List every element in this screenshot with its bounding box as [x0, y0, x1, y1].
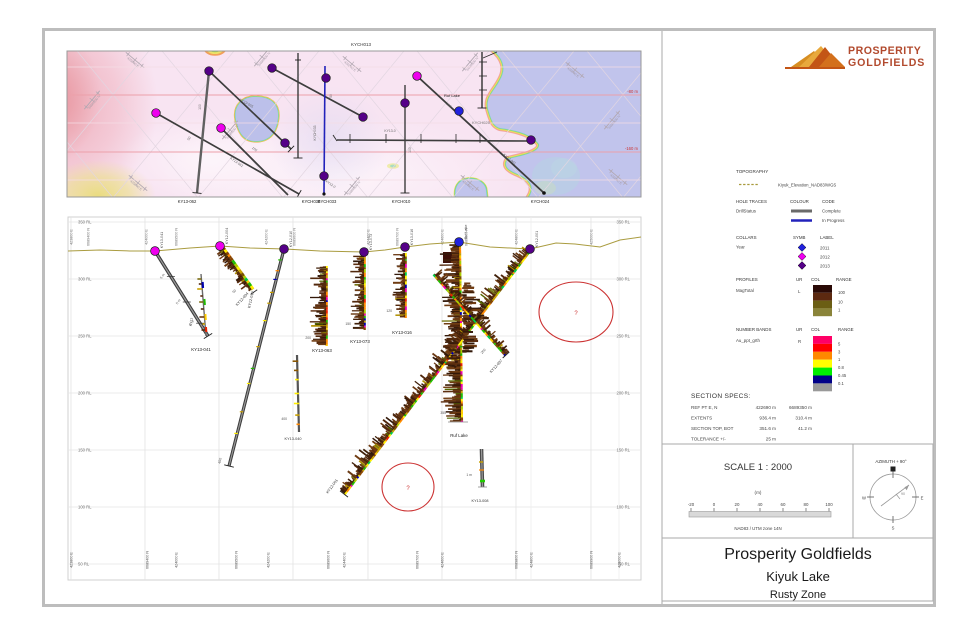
- svg-text:SCALE 1 : 2000: SCALE 1 : 2000: [724, 462, 792, 473]
- svg-text:50: 50: [329, 94, 333, 98]
- svg-text:2013: 2013: [820, 263, 830, 268]
- svg-text:-80 m: -80 m: [627, 89, 638, 94]
- svg-text:KY13-041: KY13-041: [191, 347, 211, 352]
- svg-text:KY13-040: KY13-040: [285, 437, 302, 441]
- svg-text:Kiyuk_Elevation_NAD83/WGS: Kiyuk_Elevation_NAD83/WGS: [778, 183, 836, 188]
- svg-text:-20: -20: [688, 502, 695, 507]
- svg-text:350 RL: 350 RL: [616, 220, 630, 225]
- svg-text:424600 E: 424600 E: [441, 552, 445, 568]
- svg-text:KY13-016: KY13-016: [392, 330, 412, 335]
- svg-text:E: E: [921, 496, 924, 501]
- svg-text:Prosperity Goldfields: Prosperity Goldfields: [724, 546, 872, 563]
- svg-text:MagTotal: MagTotal: [736, 288, 754, 293]
- svg-text:KYCH010: KYCH010: [392, 199, 411, 204]
- svg-text:250 RL: 250 RL: [78, 334, 92, 339]
- svg-text:80: 80: [804, 502, 809, 507]
- svg-text:HOLE TRACES: HOLE TRACES: [736, 199, 767, 204]
- svg-text:424400 E: 424400 E: [343, 552, 347, 568]
- svg-text:Ruf Lake: Ruf Lake: [464, 225, 468, 240]
- svg-text:AZIMUTH + 90°: AZIMUTH + 90°: [875, 459, 906, 464]
- svg-text:150 RL: 150 RL: [78, 448, 92, 453]
- svg-text:EXTENTS: EXTENTS: [691, 416, 712, 421]
- svg-text:COL: COL: [811, 277, 821, 282]
- svg-text:10: 10: [838, 300, 843, 305]
- svg-text:90: 90: [901, 492, 905, 496]
- svg-text:936.4 m: 936.4 m: [759, 416, 776, 421]
- svg-text:50 RL: 50 RL: [78, 562, 90, 567]
- svg-text:SECTION SPECS:: SECTION SPECS:: [691, 393, 751, 400]
- svg-text:COL: COL: [811, 327, 821, 332]
- svg-text:PROFILES: PROFILES: [736, 277, 758, 282]
- svg-text:KY13-062: KY13-062: [178, 199, 197, 204]
- svg-text:424200 E: 424200 E: [265, 229, 269, 245]
- svg-text:41.2 m: 41.2 m: [798, 426, 812, 431]
- svg-text:351.6 m: 351.6 m: [759, 426, 776, 431]
- svg-text:KY13-063: KY13-063: [312, 348, 332, 353]
- svg-text:KYCH033: KYCH033: [313, 125, 317, 140]
- svg-text:424200 E: 424200 E: [267, 552, 271, 568]
- svg-text:KY13-016: KY13-016: [410, 229, 414, 245]
- svg-text:60: 60: [781, 502, 786, 507]
- svg-text:SYMB: SYMB: [793, 235, 806, 240]
- svg-text:350 RL: 350 RL: [78, 220, 92, 225]
- svg-text:6689900 N: 6689900 N: [590, 551, 594, 569]
- svg-text:UR: UR: [796, 277, 802, 282]
- svg-text:423800 E: 423800 E: [70, 229, 74, 245]
- svg-text:120: 120: [386, 309, 392, 313]
- svg-text:300 RL: 300 RL: [616, 277, 630, 282]
- svg-text:300 RL: 300 RL: [78, 277, 92, 282]
- svg-text:20: 20: [735, 502, 740, 507]
- svg-text:424800 E: 424800 E: [530, 552, 534, 568]
- svg-text:KYCH013: KYCH013: [351, 42, 372, 47]
- svg-text:DrillStatus: DrillStatus: [736, 209, 757, 214]
- svg-text:0.45: 0.45: [838, 373, 847, 378]
- svg-text:0.8: 0.8: [838, 365, 844, 370]
- svg-text:100 RL: 100 RL: [616, 505, 630, 510]
- svg-text:RANGE: RANGE: [838, 327, 854, 332]
- svg-text:250 RL: 250 RL: [616, 334, 630, 339]
- svg-text:GOLDFIELDS: GOLDFIELDS: [848, 57, 925, 69]
- svg-text:6689600 N: 6689600 N: [327, 551, 331, 569]
- svg-text:355: 355: [440, 411, 446, 415]
- svg-text:NAD83 / UTM zone 14N: NAD83 / UTM zone 14N: [734, 526, 781, 531]
- svg-text:Complete: Complete: [822, 209, 841, 214]
- svg-text:100: 100: [838, 290, 846, 295]
- svg-text:Kiyuk Lake: Kiyuk Lake: [766, 569, 830, 584]
- svg-text:100 RL: 100 RL: [78, 505, 92, 510]
- svg-text:-160 m: -160 m: [625, 146, 639, 151]
- svg-text:KYCH025: KYCH025: [472, 120, 491, 125]
- svg-text:2011: 2011: [820, 245, 830, 250]
- svg-text:KY12-001: KY12-001: [535, 231, 539, 247]
- svg-text:1 m: 1 m: [466, 473, 472, 477]
- svg-text:Ruf Lake: Ruf Lake: [444, 93, 461, 98]
- svg-text:KY13-073: KY13-073: [350, 339, 370, 344]
- svg-text:6689400 N: 6689400 N: [87, 228, 91, 246]
- svg-text:150: 150: [345, 322, 351, 326]
- svg-text:6689350 m: 6689350 m: [789, 405, 812, 410]
- svg-text:LABEL: LABEL: [820, 235, 834, 240]
- svg-text:CODE: CODE: [822, 199, 835, 204]
- svg-text:Ruf Lake: Ruf Lake: [450, 433, 468, 438]
- svg-text:KY13-008: KY13-008: [472, 499, 489, 503]
- svg-text:6689500 N: 6689500 N: [235, 551, 239, 569]
- svg-text:NUMBER BANDS: NUMBER BANDS: [736, 327, 771, 332]
- svg-text:TOLERANCE +/-: TOLERANCE +/-: [691, 437, 726, 442]
- svg-text:310.4 m: 310.4 m: [795, 416, 812, 421]
- svg-text:Au_ppt_grth: Au_ppt_grth: [736, 338, 760, 343]
- svg-text:400: 400: [281, 417, 287, 421]
- svg-text:6689600 N: 6689600 N: [293, 228, 297, 246]
- svg-text:0.1: 0.1: [838, 381, 844, 386]
- svg-text:KY13-041: KY13-041: [160, 232, 164, 248]
- svg-text:PROSPERITY: PROSPERITY: [848, 45, 921, 57]
- svg-text:6689400 N: 6689400 N: [146, 551, 150, 569]
- svg-text:In Progress: In Progress: [822, 218, 845, 223]
- svg-text:423800 E: 423800 E: [70, 552, 74, 568]
- svg-text:KY12-010: KY12-010: [289, 231, 293, 247]
- svg-text:6689500 N: 6689500 N: [175, 228, 179, 246]
- svg-text:KYCH024: KYCH024: [531, 199, 550, 204]
- svg-text:100: 100: [198, 104, 202, 110]
- svg-text:425000 E: 425000 E: [590, 229, 594, 245]
- svg-text:TOPOGRAPHY: TOPOGRAPHY: [736, 169, 768, 174]
- svg-text:424000 E: 424000 E: [175, 552, 179, 568]
- svg-text:100: 100: [825, 502, 833, 507]
- svg-text:6689800 N: 6689800 N: [515, 551, 519, 569]
- svg-text:SECTION TOP, BOT: SECTION TOP, BOT: [691, 426, 734, 431]
- svg-text:RANGE: RANGE: [836, 277, 852, 282]
- svg-text:W: W: [862, 496, 866, 501]
- svg-text:40: 40: [758, 502, 763, 507]
- svg-text:KY13-073: KY13-073: [369, 234, 373, 250]
- svg-text:25 m: 25 m: [766, 437, 776, 442]
- svg-text:200 RL: 200 RL: [78, 391, 92, 396]
- svg-text:424000 E: 424000 E: [145, 229, 149, 245]
- svg-text:424600 E: 424600 E: [441, 229, 445, 245]
- svg-text:S: S: [892, 526, 895, 531]
- svg-text:6689700 N: 6689700 N: [416, 551, 420, 569]
- svg-text:UR: UR: [796, 327, 802, 332]
- svg-text:KYCH033: KYCH033: [318, 199, 337, 204]
- svg-text:100: 100: [408, 147, 412, 153]
- svg-text:2012: 2012: [820, 254, 830, 259]
- svg-text:(m): (m): [755, 490, 762, 495]
- svg-text:COLLARS: COLLARS: [736, 235, 757, 240]
- svg-text:REF PT E, N: REF PT E, N: [691, 405, 717, 410]
- svg-text:425000 E: 425000 E: [618, 552, 622, 568]
- svg-text:424800 E: 424800 E: [515, 229, 519, 245]
- svg-text:200 RL: 200 RL: [616, 391, 630, 396]
- svg-text:Rusty Zone: Rusty Zone: [770, 589, 826, 601]
- svg-text:R: R: [798, 339, 801, 344]
- svg-text:422690 m: 422690 m: [756, 405, 777, 410]
- svg-text:150 RL: 150 RL: [616, 448, 630, 453]
- svg-text:KY13-0: KY13-0: [384, 129, 395, 133]
- svg-text:COLOUR: COLOUR: [790, 199, 809, 204]
- svg-text:KY12-004: KY12-004: [225, 228, 229, 244]
- svg-text:200: 200: [305, 336, 311, 340]
- svg-text:Year: Year: [736, 245, 745, 250]
- svg-text:6689700 N: 6689700 N: [396, 228, 400, 246]
